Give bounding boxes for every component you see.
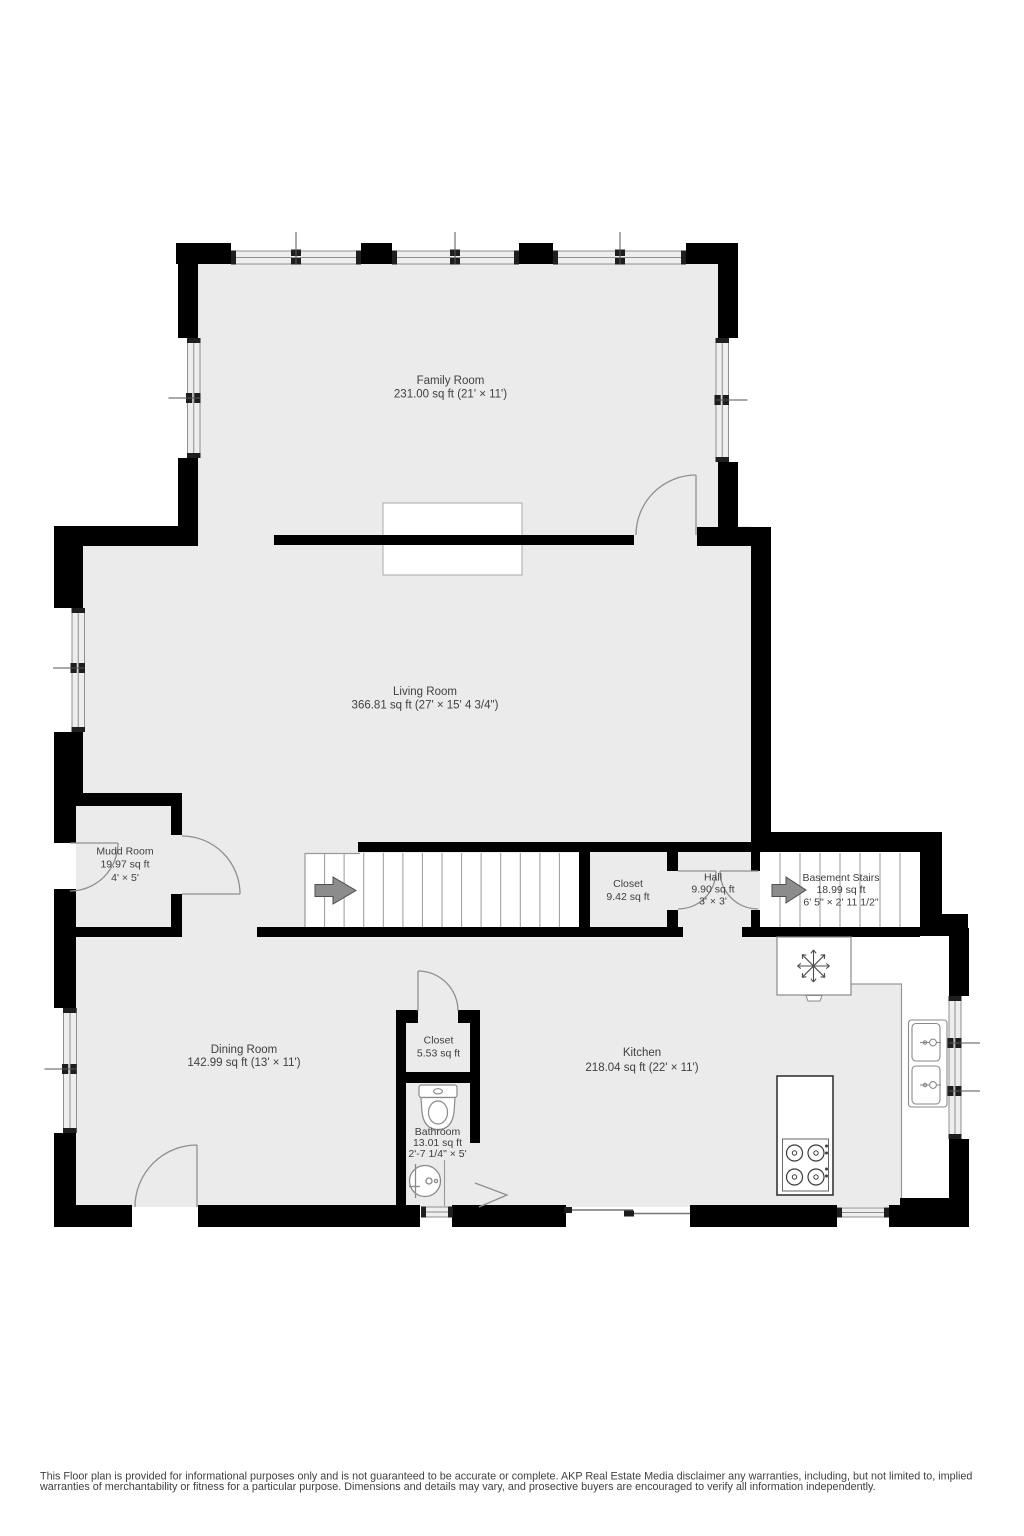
svg-text:18.99 sq ft: 18.99 sq ft bbox=[816, 884, 865, 896]
svg-text:Hall: Hall bbox=[704, 872, 722, 884]
svg-text:366.81 sq ft (27' × 15' 4 3/4": 366.81 sq ft (27' × 15' 4 3/4") bbox=[352, 700, 499, 712]
svg-text:Basement Stairs: Basement Stairs bbox=[802, 872, 879, 884]
svg-text:19.97 sq ft: 19.97 sq ft bbox=[100, 859, 149, 871]
svg-text:5.53 sq ft: 5.53 sq ft bbox=[417, 1048, 460, 1060]
svg-text:9.42 sq ft: 9.42 sq ft bbox=[606, 891, 649, 903]
svg-text:Closet: Closet bbox=[424, 1035, 454, 1047]
svg-text:9.90 sq ft: 9.90 sq ft bbox=[691, 884, 734, 896]
svg-text:2'-7 1/4" × 5': 2'-7 1/4" × 5' bbox=[408, 1148, 466, 1160]
svg-text:Mudd Room: Mudd Room bbox=[96, 846, 153, 858]
svg-text:Kitchen: Kitchen bbox=[623, 1047, 661, 1059]
svg-text:Closet: Closet bbox=[613, 878, 643, 890]
svg-text:231.00 sq ft (21' × 11'): 231.00 sq ft (21' × 11') bbox=[394, 389, 507, 401]
svg-text:4' × 5': 4' × 5' bbox=[111, 872, 139, 884]
svg-text:Living Room: Living Room bbox=[393, 686, 457, 698]
svg-text:3' × 3': 3' × 3' bbox=[699, 896, 727, 908]
svg-text:6' 5" × 2' 11 1/2": 6' 5" × 2' 11 1/2" bbox=[803, 896, 878, 908]
svg-text:Dining Room: Dining Room bbox=[211, 1044, 277, 1056]
svg-text:218.04 sq ft (22' × 11'): 218.04 sq ft (22' × 11') bbox=[585, 1062, 698, 1074]
svg-text:warranties of merchantability: warranties of merchantability or fitness… bbox=[39, 1481, 876, 1493]
svg-text:Family Room: Family Room bbox=[417, 375, 485, 387]
svg-text:142.99 sq ft (13' × 11'): 142.99 sq ft (13' × 11') bbox=[187, 1057, 300, 1069]
